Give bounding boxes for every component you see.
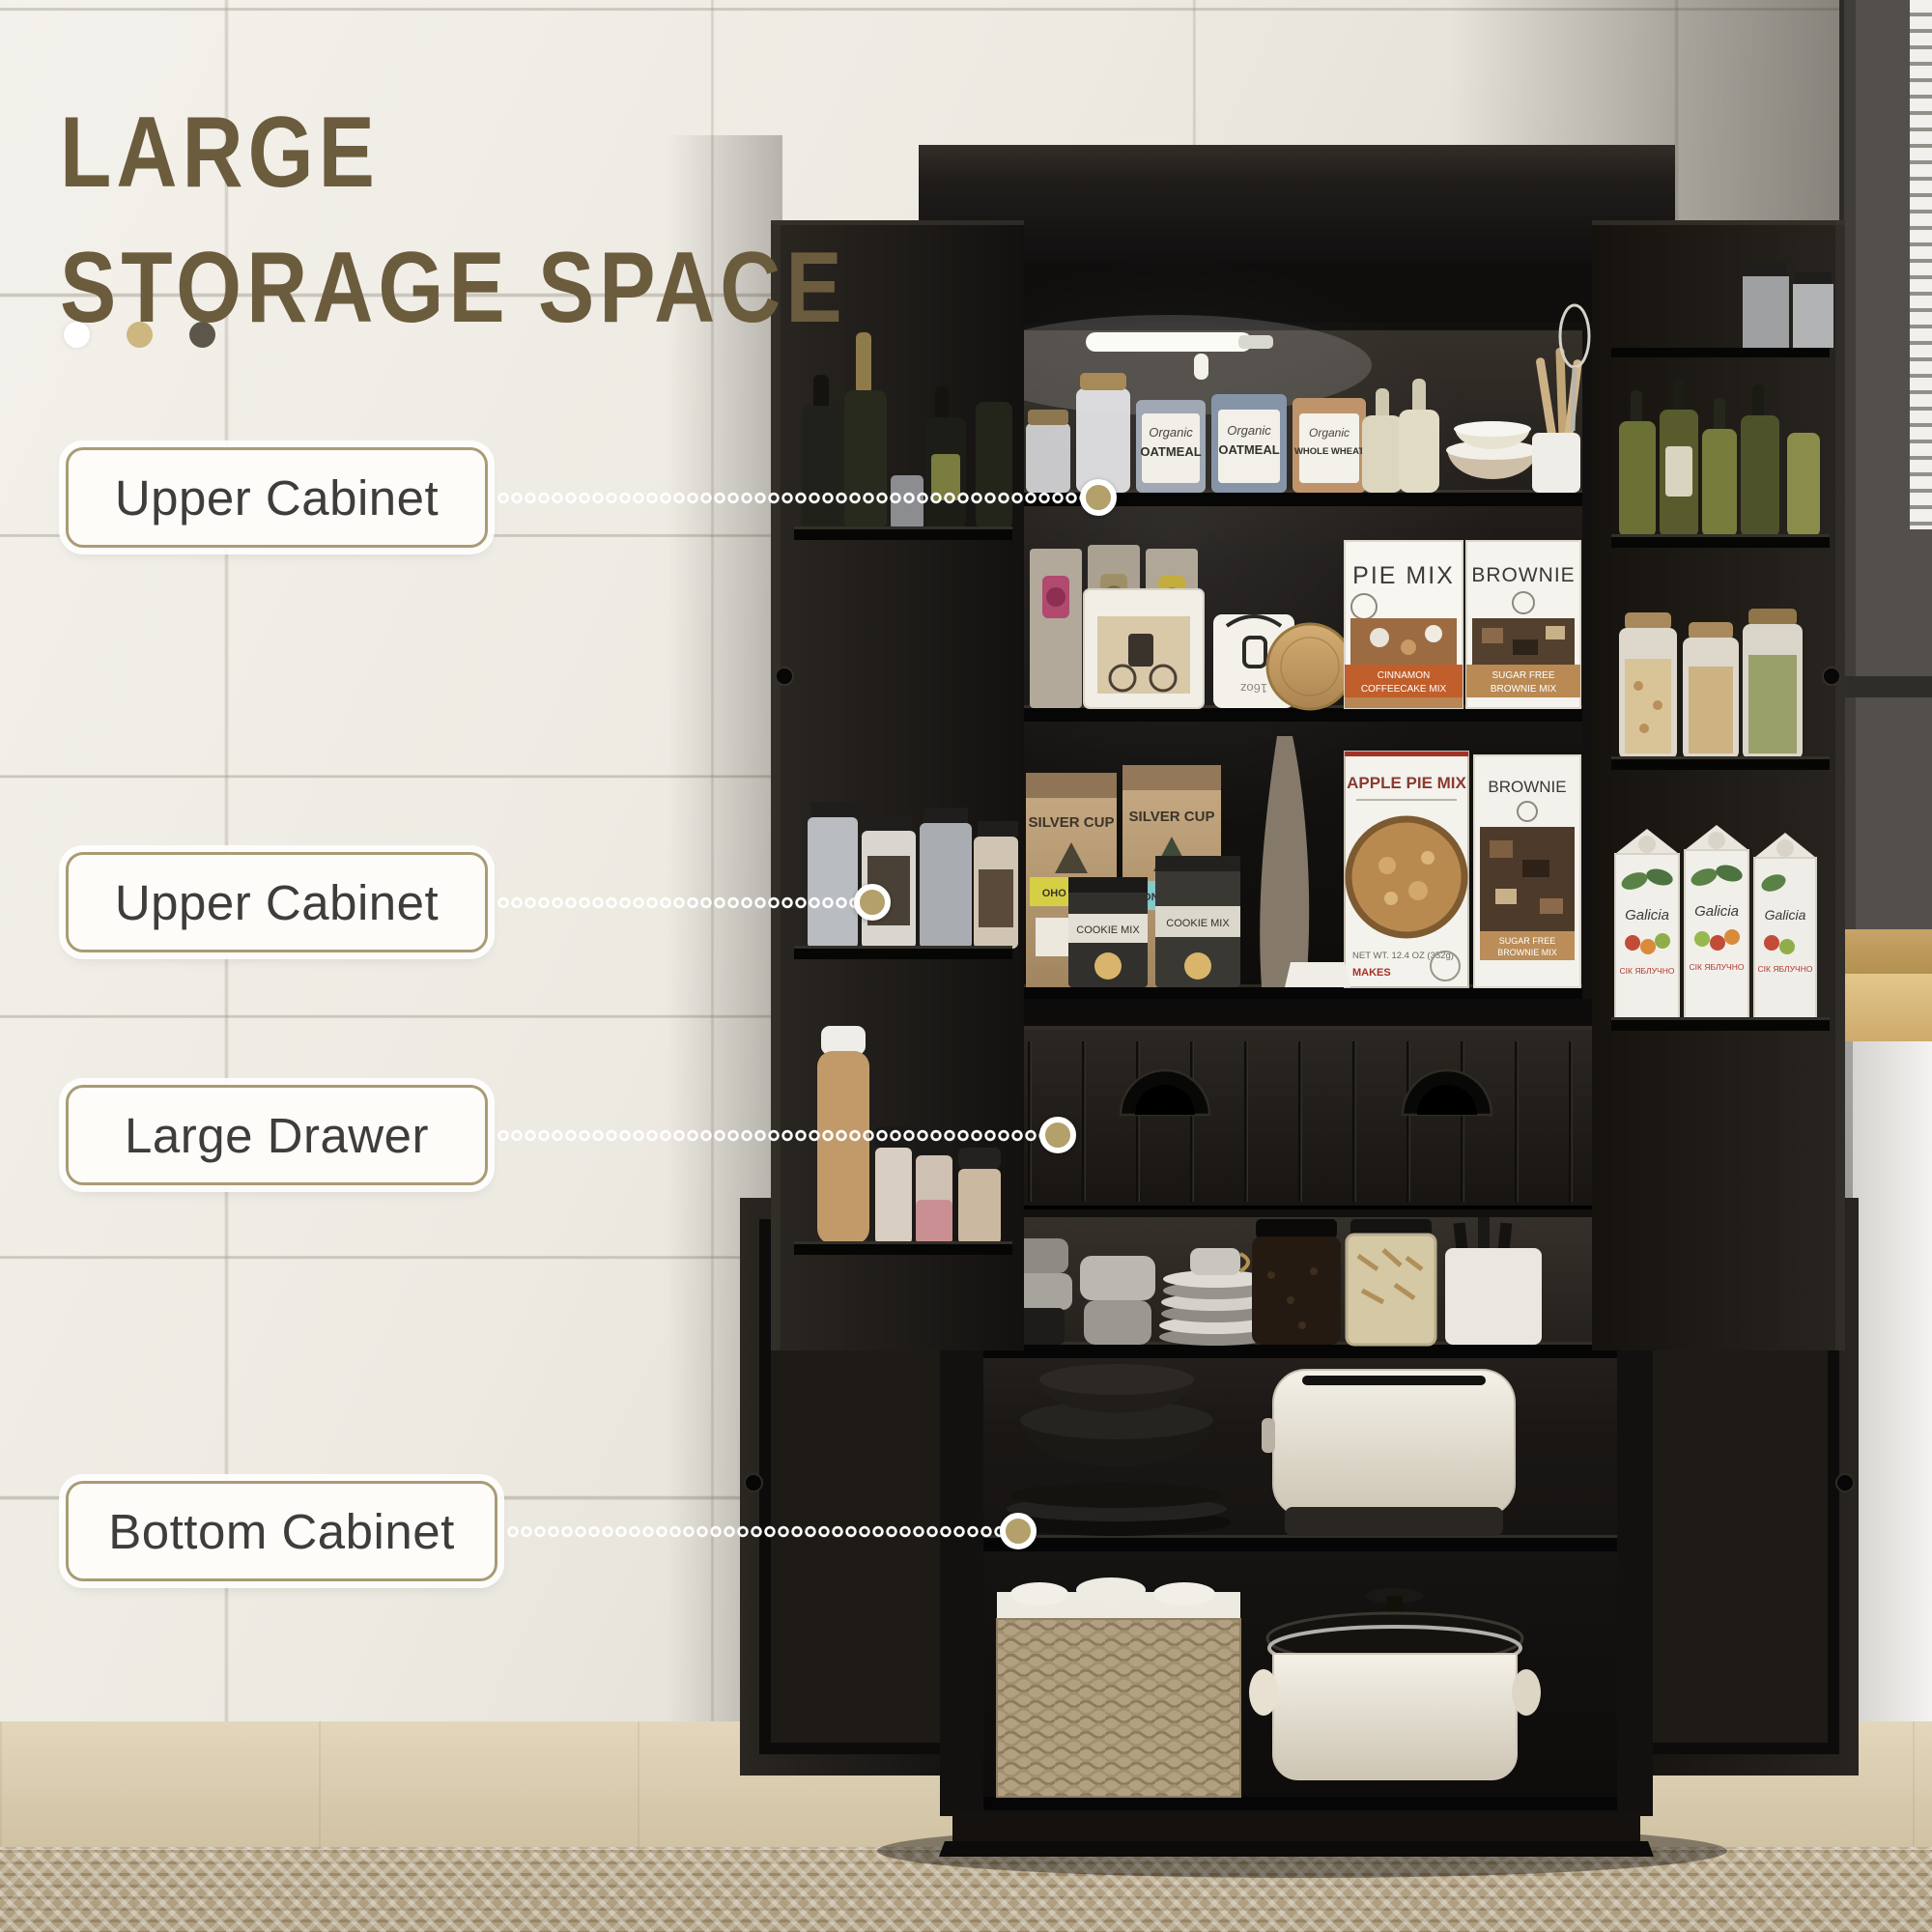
door-rack-pasta-jars [1611,609,1830,770]
callout-bottom-cabinet: Bottom Cabinet [66,1481,1004,1581]
callout-large-drawer: Large Drawer [66,1085,1043,1185]
apple-pie-mix-box: APPLE PIE MIX NET WT. 12.4 OZ (352g) MAK… [1345,752,1468,987]
svg-text:Galicia: Galicia [1625,907,1669,923]
accent-dot-brown [189,322,215,348]
leader-line [497,492,1084,504]
leader-line [497,1129,1043,1142]
svg-text:COOKIE MIX: COOKIE MIX [1166,918,1230,929]
oatmeal-canister: Organic OATMEAL [1136,400,1206,493]
svg-text:СІК ЯБЛУЧНО: СІК ЯБЛУЧНО [1620,966,1675,976]
door-knob [1836,1474,1854,1492]
svg-text:SILVER CUP: SILVER CUP [1029,814,1115,831]
price-stand [1285,962,1350,987]
leader-endpoint-dot [854,884,891,921]
brownie-box: BROWNIE SUGAR FREE BROWNIE MIX [1466,541,1580,708]
svg-text:APPLE PIE MIX: APPLE PIE MIX [1347,774,1466,792]
pie-mix-box: PIE MIX CINNAMON COFFEECAKE MIX [1345,541,1463,708]
svg-text:SUGAR FREE: SUGAR FREE [1499,936,1556,946]
page-title: LARGE STORAGE SPACE [60,85,997,355]
cookie-mix-tin-1: COOKIE MIX [1068,877,1148,987]
juice-carton: Galicia СІК ЯБЛУЧНО [1615,829,1679,1020]
svg-text:OATMEAL: OATMEAL [1140,444,1201,459]
svg-text:СІК ЯБЛУЧНО: СІК ЯБЛУЧНО [1758,964,1813,974]
callout-label: Upper Cabinet [66,447,488,548]
svg-text:BROWNIE: BROWNIE [1471,564,1575,586]
leader-line [497,896,858,909]
svg-text:Organic: Organic [1149,425,1193,440]
svg-text:16oz: 16oz [1240,681,1267,696]
vintage-art-box [1084,589,1204,708]
callout-text: Large Drawer [125,1107,429,1164]
svg-text:WHOLE WHEAT: WHOLE WHEAT [1294,446,1364,457]
leader-line [506,1525,1004,1538]
svg-text:SUGAR FREE: SUGAR FREE [1492,670,1554,681]
svg-text:MAKES: MAKES [1352,967,1391,979]
svg-text:COFFEECAKE MIX: COFFEECAKE MIX [1361,684,1447,695]
accent-dot-tan [127,322,153,348]
leader-endpoint-dot [1039,1117,1076,1153]
svg-text:Organic: Organic [1227,423,1271,438]
large-drawer [940,999,1653,1209]
callout-label: Large Drawer [66,1085,488,1185]
door-rack-juice-cartons: Galicia СІК ЯБЛУЧНО Galicia СІК ЯБЛУЧНО [1611,825,1830,1031]
callout-upper-cabinet-2: Upper Cabinet [66,852,858,952]
svg-text:PIE MIX: PIE MIX [1352,562,1455,589]
pasta-jar [1347,1219,1435,1345]
leader-endpoint-dot [1080,479,1117,516]
svg-text:BROWNIE: BROWNIE [1488,778,1566,796]
whole-wheat-canister: Organic WHOLE WHEAT [1293,398,1366,493]
door-knob [1823,668,1840,685]
svg-text:Galicia: Galicia [1694,903,1739,920]
callout-text: Upper Cabinet [115,874,439,931]
oatmeal-canister-2: Organic OATMEAL [1211,394,1287,493]
coffee-bean-jar [1252,1219,1341,1345]
brownie-box-2: BROWNIE SUGAR FREE BROWNIE MIX [1474,755,1580,987]
callout-text: Upper Cabinet [115,469,439,526]
upper-right-door-open: Galicia СІК ЯБЛУЧНО Galicia СІК ЯБЛУЧНО [1592,220,1845,1350]
juice-carton: Galicia СІК ЯБЛУЧНО [1754,833,1816,1020]
product-infographic: Organic OATMEAL Organic OATMEAL Organic … [0,0,1932,1932]
wicker-basket [997,1577,1240,1797]
svg-text:Organic: Organic [1309,426,1350,440]
svg-text:OATMEAL: OATMEAL [1218,442,1279,457]
juice-carton: Galicia СІК ЯБЛУЧНО [1685,825,1748,1020]
svg-text:Galicia: Galicia [1765,907,1806,923]
wooden-lid [1267,624,1352,709]
callout-upper-cabinet-1: Upper Cabinet [66,447,1084,548]
door-knob [776,668,793,685]
svg-text:BROWNIE MIX: BROWNIE MIX [1491,684,1557,695]
svg-text:BROWNIE MIX: BROWNIE MIX [1497,948,1557,957]
svg-text:СІК ЯБЛУЧНО: СІК ЯБЛУЧНО [1690,962,1745,972]
svg-text:SILVER CUP: SILVER CUP [1129,809,1215,825]
accent-dots [64,322,215,348]
headline: LARGE STORAGE SPACE [60,85,997,355]
leader-endpoint-dot [1000,1513,1037,1549]
callout-text: Bottom Cabinet [108,1503,455,1560]
cookie-mix-tin-2: COOKIE MIX [1155,856,1240,987]
svg-text:CINNAMON: CINNAMON [1378,670,1430,681]
toaster [1262,1370,1515,1536]
accent-dot-white [64,322,90,348]
title-line-1: LARGE [60,85,380,220]
callout-label: Bottom Cabinet [66,1481,497,1581]
svg-text:COOKIE MIX: COOKIE MIX [1076,924,1140,936]
callout-label: Upper Cabinet [66,852,488,952]
cabinet-base [939,1812,1654,1857]
